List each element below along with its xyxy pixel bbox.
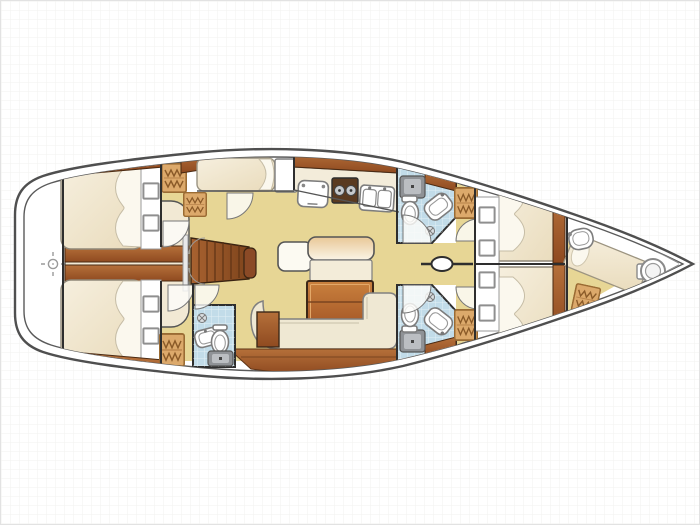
shower-tray xyxy=(400,176,425,198)
drain xyxy=(411,185,414,188)
shower-tray xyxy=(400,330,425,352)
side-cabinet xyxy=(257,312,279,347)
hanging-locker-icon xyxy=(160,334,184,366)
step-shelf xyxy=(141,165,161,249)
storage-square xyxy=(479,240,494,255)
step-shelf xyxy=(141,280,161,362)
storage-square xyxy=(479,305,494,320)
drain xyxy=(411,340,414,343)
drain xyxy=(219,357,222,360)
hanging-locker-icon xyxy=(184,193,207,217)
storage-square xyxy=(143,296,158,311)
storage-square xyxy=(143,215,158,230)
sofa-base xyxy=(310,260,372,281)
engine-plank-2 xyxy=(65,265,189,281)
bottom-step xyxy=(244,248,256,278)
shower-tray xyxy=(208,351,233,366)
hand-rail xyxy=(183,235,188,291)
hanging-locker-icon xyxy=(455,310,478,340)
hanging-locker-icon xyxy=(455,188,478,218)
floor-plan-canvas xyxy=(0,0,700,525)
storage-square xyxy=(479,207,494,222)
storage-square xyxy=(143,328,158,343)
mast xyxy=(432,257,453,271)
armchair xyxy=(278,242,312,271)
sofa-cushion xyxy=(308,237,374,260)
toilet xyxy=(212,325,229,354)
shower-mixer-icon xyxy=(198,314,207,323)
yacht-floor-plan xyxy=(1,1,700,525)
storage-square xyxy=(143,183,158,198)
storage-square xyxy=(479,272,494,287)
